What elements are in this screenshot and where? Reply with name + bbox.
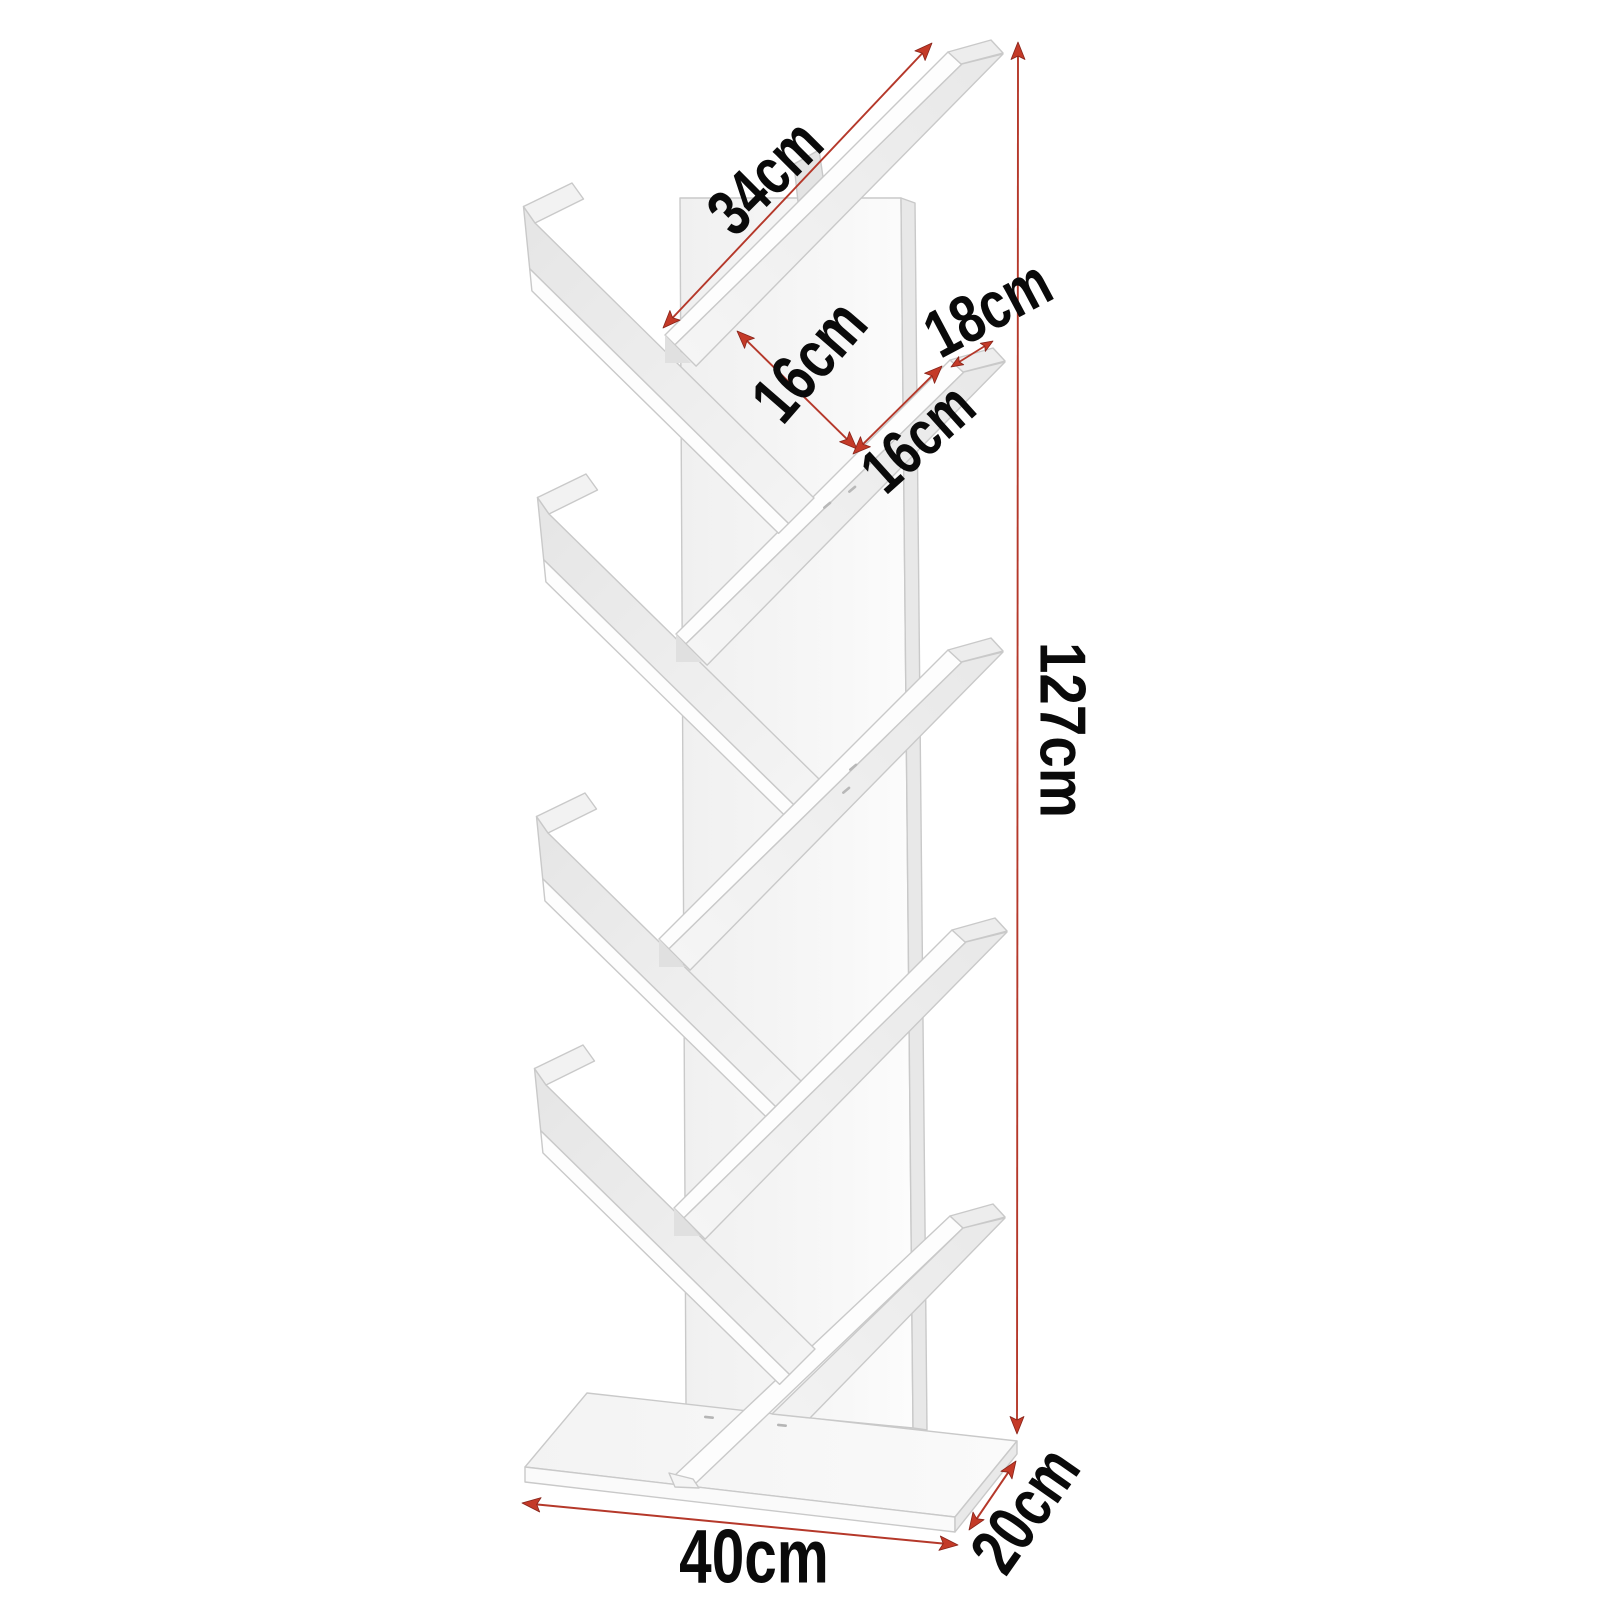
- svg-text:40cm: 40cm: [679, 1515, 829, 1599]
- svg-text:127cm: 127cm: [1027, 642, 1100, 818]
